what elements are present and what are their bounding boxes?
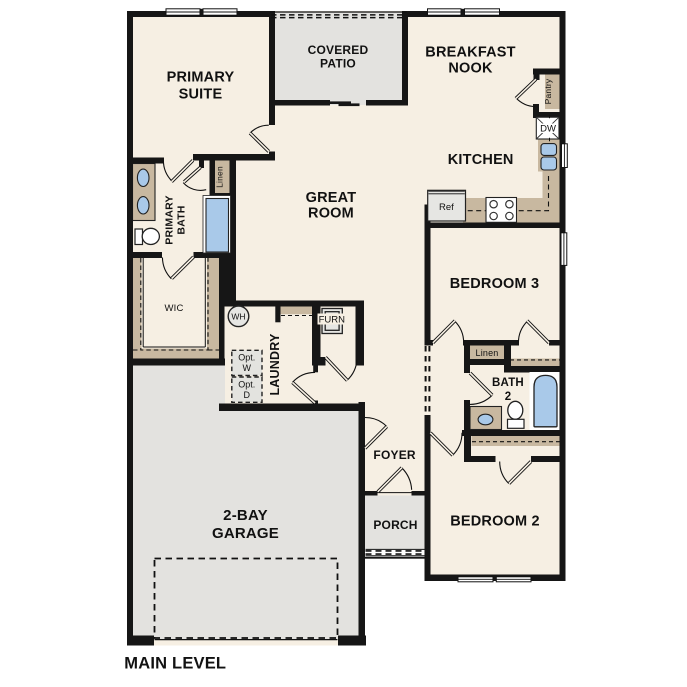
svg-text:2: 2 — [505, 391, 512, 403]
svg-text:Opt.: Opt. — [238, 379, 255, 389]
svg-text:BATH: BATH — [176, 205, 188, 234]
svg-text:FURN: FURN — [319, 315, 346, 326]
svg-text:LAUNDRY: LAUNDRY — [268, 333, 282, 396]
svg-text:Linen: Linen — [215, 166, 225, 188]
svg-text:PRIMARY: PRIMARY — [164, 195, 176, 244]
svg-text:Ref: Ref — [439, 202, 454, 213]
svg-text:FOYER: FOYER — [373, 448, 415, 462]
svg-text:W: W — [243, 363, 252, 373]
svg-text:Linen: Linen — [475, 348, 498, 358]
svg-text:Pantry: Pantry — [543, 78, 553, 104]
svg-text:BATH: BATH — [492, 377, 524, 389]
svg-text:D: D — [244, 390, 251, 400]
svg-text:GREAT: GREAT — [306, 190, 357, 206]
svg-text:SUITE: SUITE — [179, 87, 223, 103]
svg-text:KITCHEN: KITCHEN — [448, 152, 514, 168]
svg-text:WIC: WIC — [164, 303, 183, 314]
svg-text:PORCH: PORCH — [373, 518, 417, 532]
svg-text:BEDROOM 2: BEDROOM 2 — [450, 514, 540, 530]
svg-text:BREAKFAST: BREAKFAST — [425, 45, 515, 61]
svg-text:COVERED: COVERED — [308, 43, 369, 57]
svg-text:WH: WH — [231, 312, 245, 322]
svg-text:DW: DW — [540, 124, 556, 135]
svg-text:ROOM: ROOM — [308, 206, 354, 222]
svg-text:PRIMARY: PRIMARY — [167, 70, 235, 86]
svg-text:Opt.: Opt. — [238, 353, 255, 363]
svg-text:PATIO: PATIO — [320, 57, 356, 71]
svg-text:BEDROOM 3: BEDROOM 3 — [450, 276, 540, 292]
svg-text:2-BAY: 2-BAY — [223, 507, 268, 524]
svg-text:GARAGE: GARAGE — [212, 525, 279, 542]
svg-text:MAIN LEVEL: MAIN LEVEL — [124, 655, 226, 673]
svg-text:NOOK: NOOK — [448, 61, 493, 77]
